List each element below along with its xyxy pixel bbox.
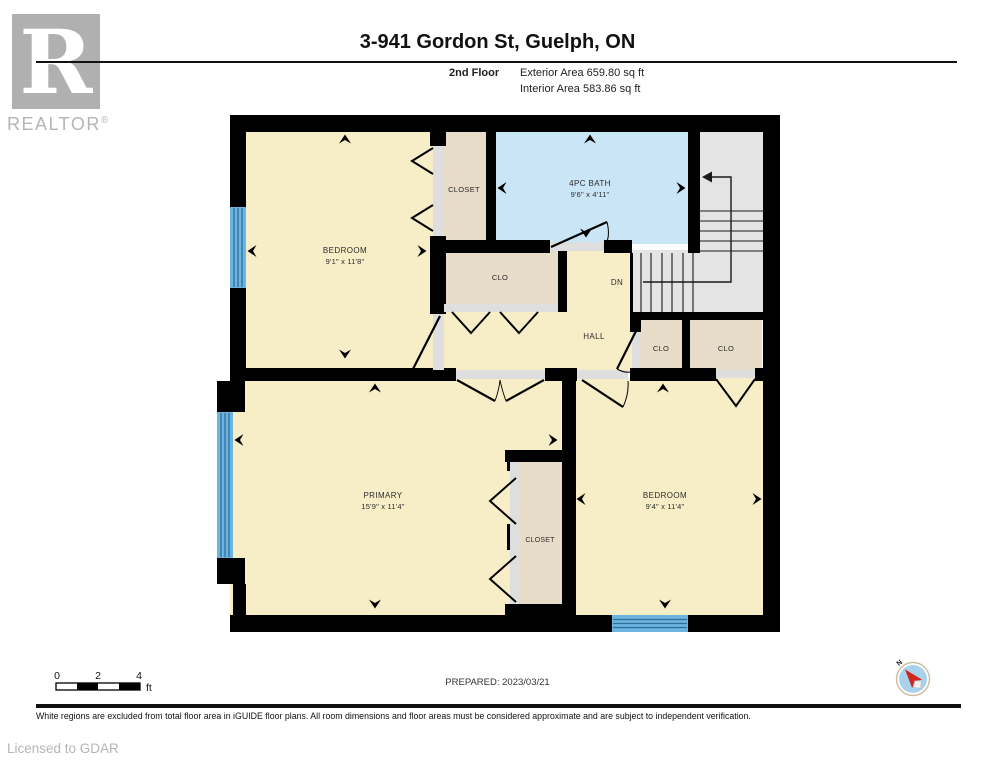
room-label-closet1: CLOSET bbox=[448, 185, 480, 194]
room-label-bedroom1: BEDROOM bbox=[323, 246, 367, 255]
license-text: Licensed to GDAR bbox=[7, 741, 119, 756]
room-label-bedroom2: BEDROOM bbox=[643, 491, 687, 500]
primary-window bbox=[217, 412, 233, 558]
room-label-primary: PRIMARY bbox=[363, 491, 402, 500]
room-label-clo-hall: CLO bbox=[492, 273, 508, 282]
room-dims-primary: 15'9" x 11'4" bbox=[361, 502, 404, 511]
compass-icon: N bbox=[893, 656, 930, 695]
room-label-hall: HALL bbox=[583, 332, 605, 341]
registered-mark: ® bbox=[101, 115, 110, 126]
room-dims-bath: 9'6" x 4'11" bbox=[571, 190, 610, 199]
room-label-clo-left: CLO bbox=[653, 344, 669, 353]
prepared-date: PREPARED: 2023/03/21 bbox=[0, 677, 995, 688]
stairs-dn-label: DN bbox=[611, 278, 623, 287]
floor-plan-page: BEDROOM 9'1" x 11'8" CLOSET 4PC BATH 9'6… bbox=[0, 0, 995, 768]
bedroom1-window bbox=[230, 207, 246, 288]
bedroom2-window bbox=[612, 615, 688, 632]
floor-label: 2nd Floor bbox=[449, 67, 499, 79]
exterior-area: Exterior Area 659.80 sq ft bbox=[520, 67, 644, 79]
floor-plan-canvas: BEDROOM 9'1" x 11'8" CLOSET 4PC BATH 9'6… bbox=[0, 0, 995, 768]
hall-floor bbox=[444, 310, 634, 372]
room-dims-bedroom2: 9'4" x 11'4" bbox=[646, 502, 685, 511]
room-dims-bedroom1: 9'1" x 11'8" bbox=[326, 257, 365, 266]
room-label-clo-right: CLO bbox=[718, 344, 734, 353]
realtor-wordmark: REALTOR® bbox=[7, 114, 122, 135]
bath-floor bbox=[494, 132, 690, 244]
disclaimer-text: White regions are excluded from total fl… bbox=[36, 711, 956, 721]
room-label-primary-closet: CLOSET bbox=[525, 537, 555, 544]
page-title: 3-941 Gordon St, Guelph, ON bbox=[0, 31, 995, 54]
room-label-bath: 4PC BATH bbox=[569, 179, 611, 188]
header-divider bbox=[36, 61, 957, 63]
interior-area: Interior Area 583.86 sq ft bbox=[520, 83, 640, 95]
primary-closet-floor bbox=[514, 460, 562, 606]
footer-divider bbox=[36, 704, 961, 708]
